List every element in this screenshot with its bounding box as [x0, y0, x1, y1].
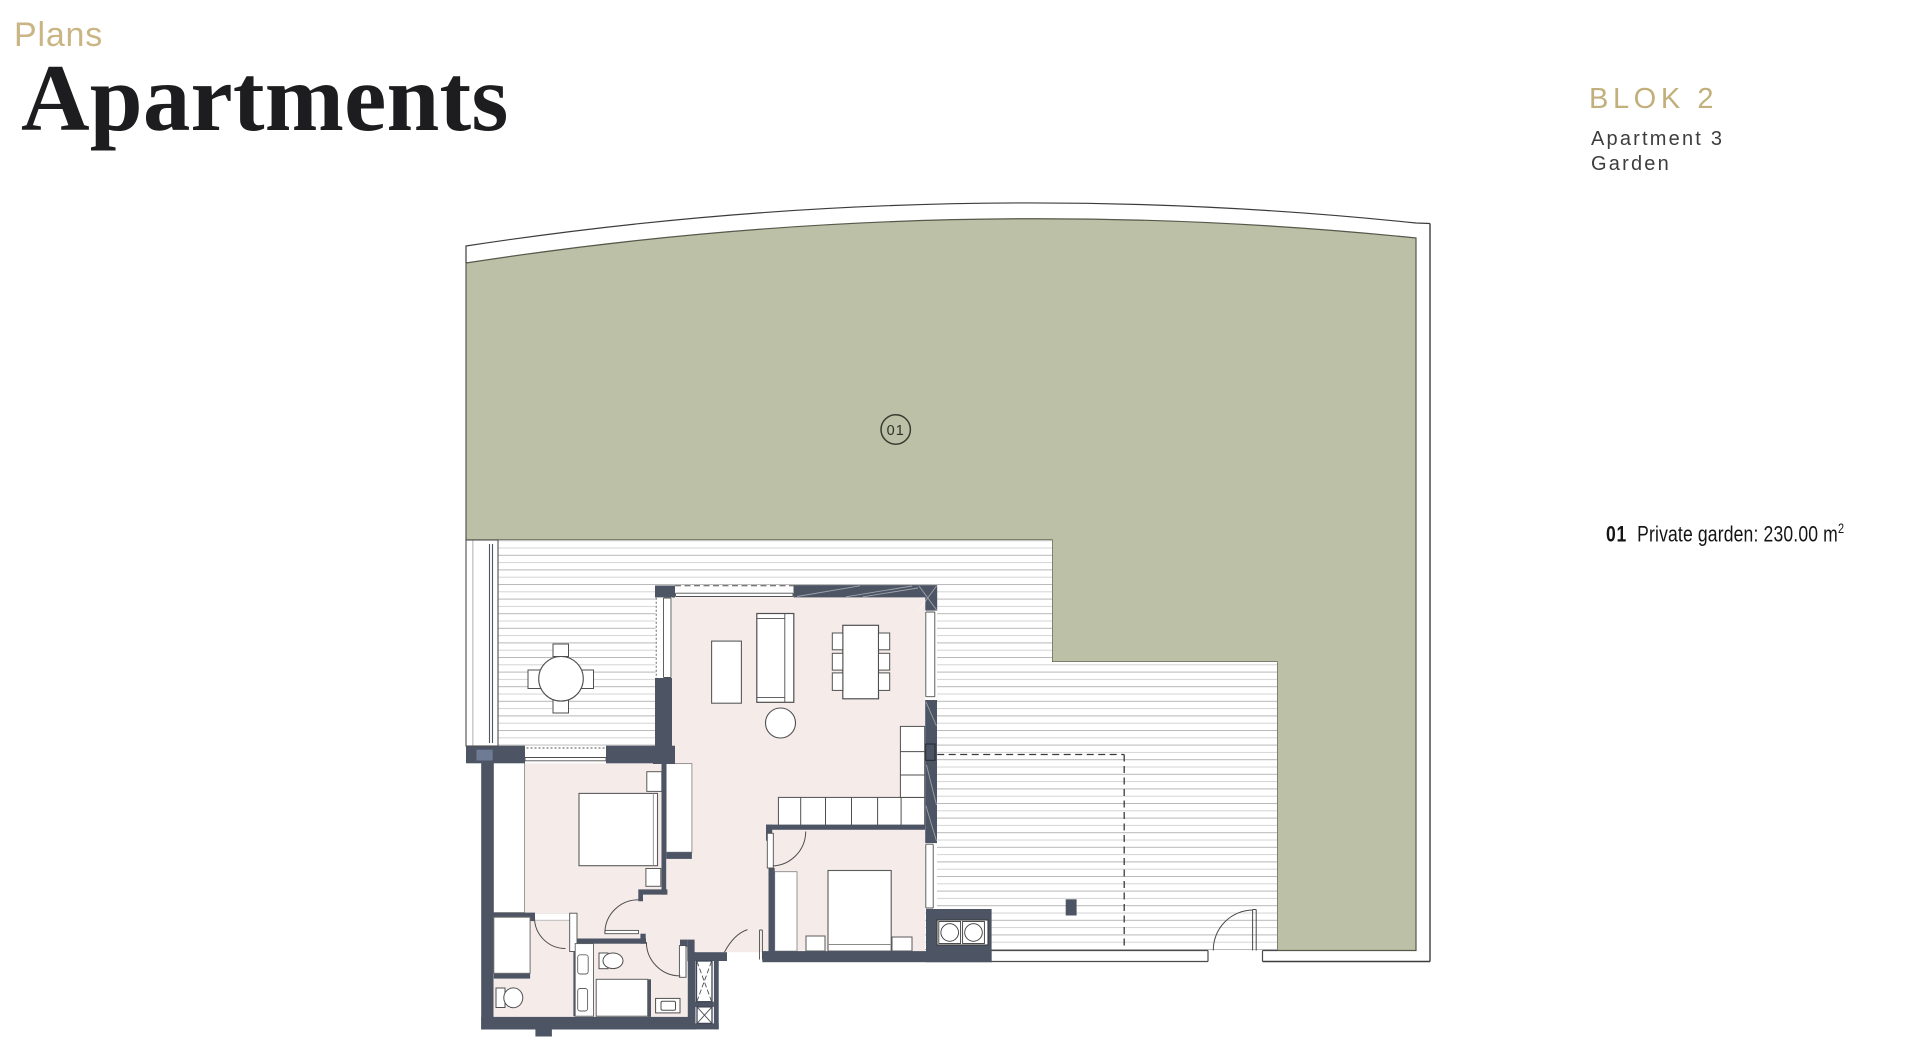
- svg-text:01: 01: [887, 423, 905, 439]
